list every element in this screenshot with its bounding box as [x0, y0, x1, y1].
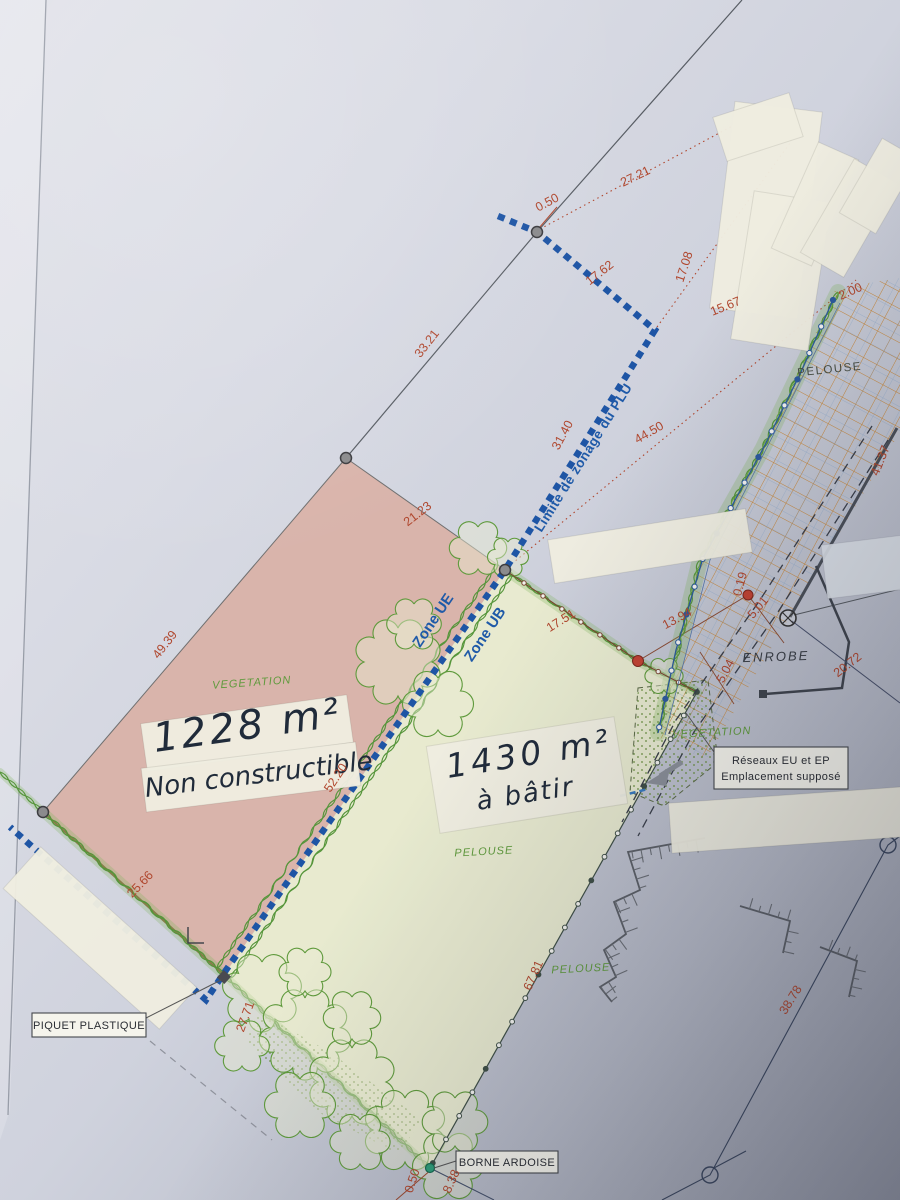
piquet-plastique-label: PIQUET PLASTIQUE: [33, 1020, 145, 1032]
dimension-label: 31.40: [549, 418, 576, 452]
surface-label: ENROBE: [742, 648, 809, 665]
red-boundary-point: [633, 656, 644, 667]
slope-talus-symbols: [600, 838, 866, 1002]
reseaux-label-line1: Réseaux EU et EP: [732, 755, 830, 767]
survey-plan-photo: PIQUET PLASTIQUE BORNE ARDOISE Réseaux E…: [0, 0, 900, 1200]
dimension-label: 0.50: [533, 191, 561, 215]
reseaux-label-line2: Emplacement supposé: [721, 771, 841, 783]
surface-label: PELOUSE: [551, 961, 611, 976]
dimension-label: 44.50: [632, 419, 666, 447]
paper-edge: [0, 0, 46, 1140]
manhole-symbol: [780, 610, 796, 626]
dimension-label: 38.78: [776, 983, 804, 1017]
dimension-label: 17.08: [673, 250, 696, 284]
dimension-label: 27.21: [618, 163, 652, 189]
dimension-label: 0.50: [402, 1167, 423, 1195]
borne-ardoise-point: [426, 1164, 435, 1173]
borne-ardoise-label: BORNE ARDOISE: [459, 1157, 555, 1169]
dimension-label: 49.39: [150, 628, 180, 661]
plu-line-label: Limite de zonage du PLU: [531, 381, 635, 535]
survey-plan-drawing: PIQUET PLASTIQUE BORNE ARDOISE Réseaux E…: [0, 0, 900, 1200]
dimension-label: 33.21: [412, 327, 442, 360]
